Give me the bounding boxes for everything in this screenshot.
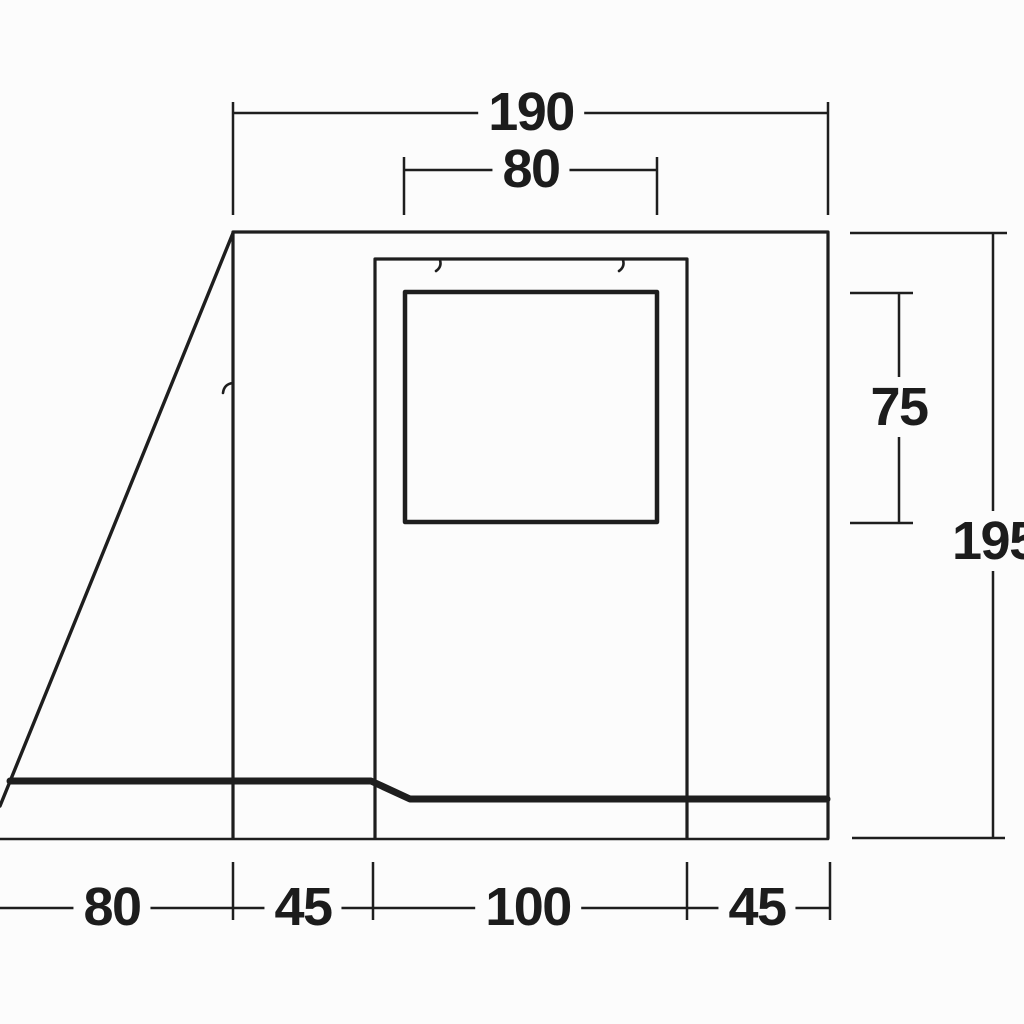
main-panel-outline (233, 232, 828, 838)
zipper-pull-icon (436, 260, 441, 271)
diagram-canvas: 190 80 75 195 80 45 100 45 (0, 0, 1024, 1024)
dim-label-bottom-segment: 80 (73, 877, 150, 937)
window-outline (405, 292, 657, 522)
door-panel-outline (375, 259, 687, 838)
dim-label-window-width: 80 (492, 139, 569, 199)
skirt-bar (10, 781, 827, 799)
zipper-pull-icon (619, 260, 624, 271)
dim-label-window-height: 75 (860, 377, 937, 437)
dim-label-bottom-segment: 100 (475, 877, 581, 937)
dim-label-overall-height: 195 (944, 511, 1024, 571)
dim-label-bottom-segment: 45 (718, 877, 795, 937)
dim-label-overall-width: 190 (478, 82, 584, 142)
slope-line (0, 233, 233, 806)
dim-label-bottom-segment: 45 (264, 877, 341, 937)
